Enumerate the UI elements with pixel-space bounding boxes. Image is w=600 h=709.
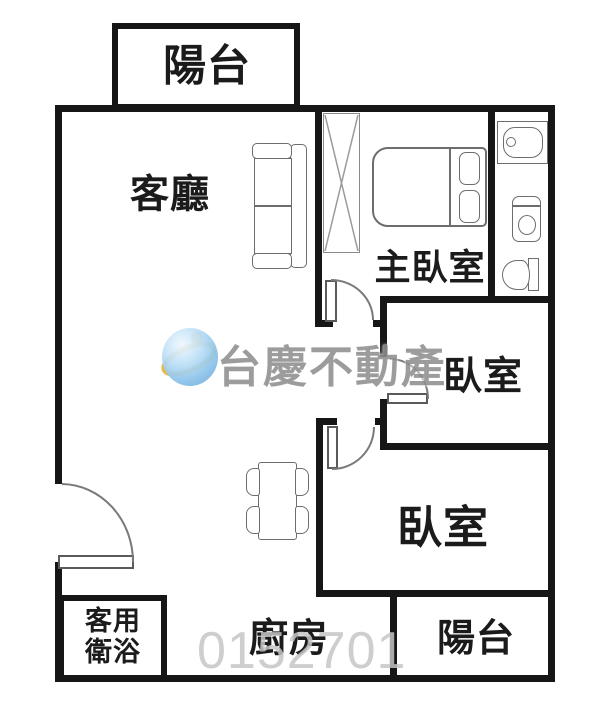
listing-number-watermark: 0152701	[197, 621, 406, 681]
wall-outer-left-upper	[55, 105, 62, 484]
wardrobe-icon	[323, 113, 360, 253]
wall-midbedroom-bottom	[380, 443, 555, 450]
big-bedroom-door	[327, 426, 338, 469]
wall-bigbedroom-bottom	[316, 590, 555, 597]
wall-living-master	[315, 105, 322, 327]
brand-logo-icon	[162, 328, 218, 386]
master-bedroom-door	[325, 280, 337, 322]
sofa-armrest	[252, 143, 292, 159]
wall-bathroom-bottom	[380, 296, 555, 303]
entrance-door-icon	[58, 555, 134, 569]
door-swing-icon	[332, 427, 374, 469]
balcony-bottom-label: 陽台	[437, 618, 515, 662]
door-swing-icon	[62, 484, 133, 562]
pillow-icon	[459, 152, 480, 185]
sofa-armrest	[252, 253, 292, 269]
wall-bigbedroom-left	[316, 418, 323, 597]
bed-blanket-line	[449, 148, 451, 226]
master-bedroom-label: 主臥室	[374, 246, 485, 287]
wall-master-bathroom	[488, 105, 495, 303]
chair-icon	[295, 468, 309, 496]
floor-plan: 陽台 客廳 主臥室 臥室 臥室 廚房 陽台 客用 衛浴 台慶不動產 015270…	[0, 0, 600, 709]
bedroom-middle-label: 臥室	[443, 356, 523, 401]
washing-machine-panel	[513, 205, 540, 207]
sofa-seat-divider	[255, 205, 291, 207]
balcony-top-label: 陽台	[163, 42, 251, 91]
door-swing-icon	[331, 280, 373, 320]
guest-bathroom-label: 客用 衛浴	[85, 606, 141, 668]
bedroom-large-label: 臥室	[397, 502, 489, 554]
bathtub-drain	[506, 137, 516, 147]
chair-icon	[246, 506, 260, 534]
guest-bathroom-label-line1: 客用	[85, 606, 141, 637]
pillow-icon	[459, 190, 480, 223]
dining-table-icon	[258, 462, 297, 540]
living-room-label: 客廳	[130, 174, 210, 219]
guest-bathroom-label-line2: 衛浴	[85, 637, 141, 668]
chair-icon	[295, 506, 309, 534]
brand-watermark-text: 台慶不動產	[217, 331, 447, 395]
toilet-icon	[502, 260, 530, 290]
wall-bigbedroom-top-right	[375, 418, 387, 425]
sofa-icon	[290, 144, 307, 268]
washing-machine-drum	[518, 215, 536, 235]
chair-icon	[246, 468, 260, 496]
